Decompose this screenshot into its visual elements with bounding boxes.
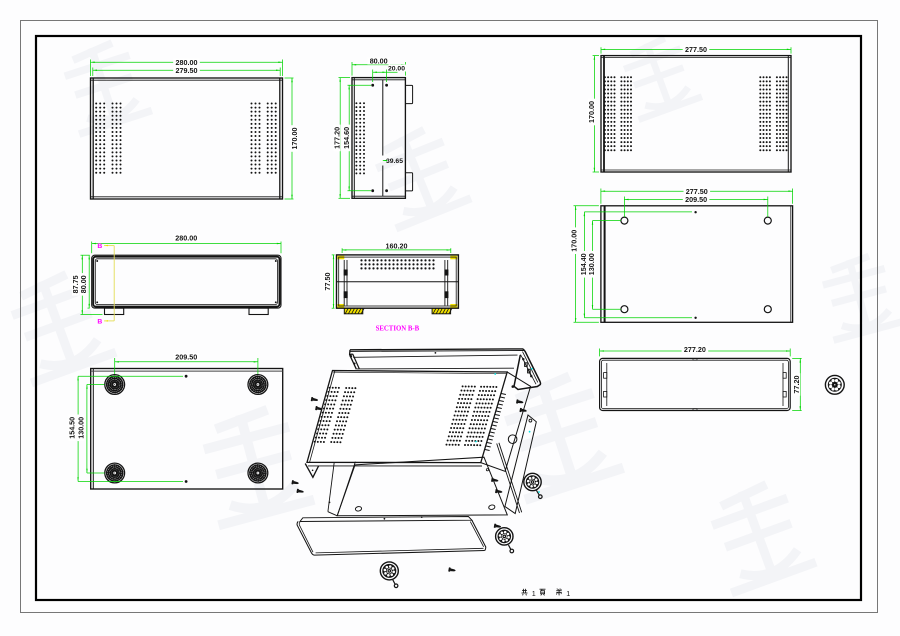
svg-text:77.20: 77.20	[792, 376, 801, 394]
svg-text:SECTION B-B: SECTION B-B	[376, 326, 420, 333]
svg-text:277.20: 277.20	[684, 345, 706, 354]
svg-text:154.60: 154.60	[342, 127, 351, 149]
svg-text:1: 1	[566, 589, 570, 598]
svg-text:170.00: 170.00	[569, 230, 578, 252]
svg-text:177.20: 177.20	[332, 127, 341, 149]
svg-text:160.20: 160.20	[386, 242, 408, 251]
svg-text:209.50: 209.50	[175, 352, 197, 361]
svg-text:B: B	[97, 319, 102, 326]
svg-text:77.50: 77.50	[323, 273, 332, 291]
svg-text:277.50: 277.50	[685, 45, 707, 54]
svg-text:B: B	[97, 243, 102, 250]
svg-text:1: 1	[532, 589, 536, 598]
svg-text:80.00: 80.00	[79, 275, 88, 293]
svg-text:20.00: 20.00	[388, 66, 405, 73]
svg-text:170.00: 170.00	[587, 101, 596, 123]
svg-text:279.50: 279.50	[176, 66, 198, 75]
svg-text:154.50: 154.50	[68, 417, 77, 439]
svg-text:280.00: 280.00	[175, 233, 197, 242]
svg-text:80.00: 80.00	[370, 57, 388, 66]
svg-text:209.50: 209.50	[685, 195, 707, 204]
svg-text:39.65: 39.65	[386, 158, 403, 165]
svg-text:170.00: 170.00	[290, 128, 299, 150]
svg-text:130.00: 130.00	[587, 253, 596, 275]
svg-text:130.00: 130.00	[77, 417, 86, 439]
